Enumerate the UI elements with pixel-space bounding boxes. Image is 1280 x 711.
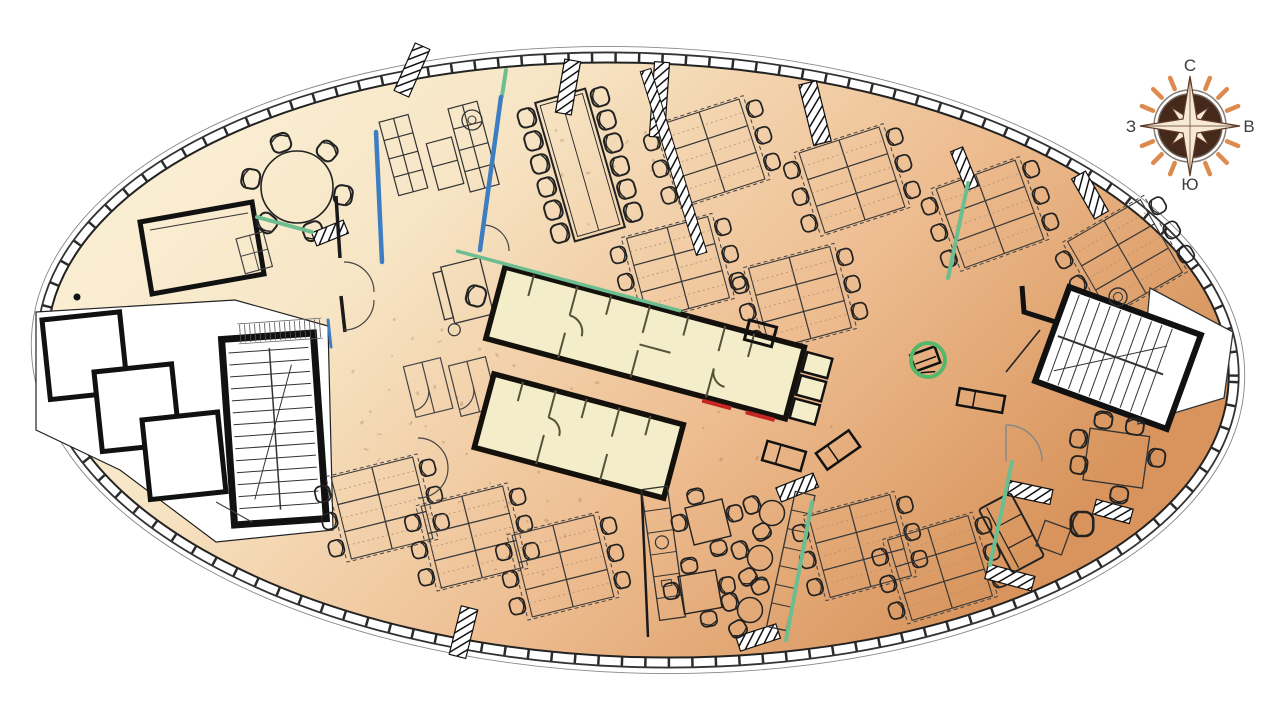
floor-plan-drawing: С В Ю З bbox=[0, 0, 1280, 711]
floor-plan-page: С В Ю З bbox=[0, 0, 1280, 711]
compass-label-south: Ю bbox=[1181, 175, 1198, 194]
left-stairwell bbox=[222, 333, 327, 525]
compass-label-north: С bbox=[1184, 56, 1196, 75]
left-annex bbox=[36, 294, 333, 543]
column-dot bbox=[74, 294, 81, 301]
compass-rose: С В Ю З bbox=[1126, 56, 1255, 194]
compass-label-west: З bbox=[1126, 117, 1136, 136]
compass-label-east: В bbox=[1243, 117, 1254, 136]
annex-room-3 bbox=[142, 412, 226, 500]
